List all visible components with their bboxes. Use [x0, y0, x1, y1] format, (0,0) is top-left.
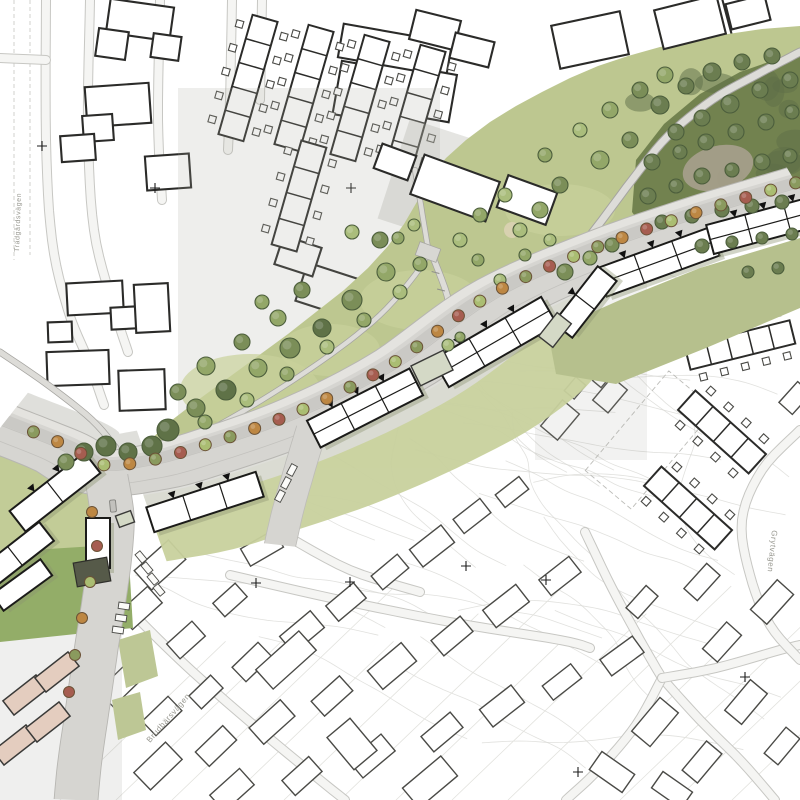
tree-icon [695, 239, 709, 253]
street-tree-icon [92, 541, 103, 552]
street-tree-icon [452, 310, 464, 322]
tree-icon [678, 78, 694, 94]
street-tree-icon [790, 177, 800, 189]
tree-icon [270, 310, 286, 326]
street-tree-icon [321, 393, 333, 405]
tree-icon [725, 163, 739, 177]
tree-icon [532, 202, 548, 218]
tree-icon [455, 332, 465, 342]
tree-icon [392, 232, 404, 244]
tree-icon [644, 154, 660, 170]
tree-icon [234, 334, 250, 350]
street-tree-icon [70, 650, 81, 661]
street-tree-icon [568, 250, 580, 262]
tree-icon [772, 262, 784, 274]
tree-icon [703, 63, 721, 81]
street-tree-icon [297, 403, 309, 415]
street-tree-icon [389, 356, 401, 368]
tree-icon [357, 313, 371, 327]
street-tree-icon [432, 325, 444, 337]
street-tree-icon [411, 341, 423, 353]
tree-icon [758, 114, 774, 130]
tree-icon [782, 72, 798, 88]
street-tree-icon [85, 577, 96, 588]
street-tree-icon [665, 215, 677, 227]
street-tree-icon [740, 191, 752, 203]
street-tree-icon [64, 687, 75, 698]
tree-icon [413, 257, 427, 271]
street-tree-icon [175, 447, 187, 459]
tree-icon [255, 295, 269, 309]
street-tree-icon [224, 431, 236, 443]
tree-icon [513, 223, 527, 237]
tree-icon [197, 357, 215, 375]
street-tree-icon [344, 381, 356, 393]
street-tree-icon [520, 271, 532, 283]
tree-icon [783, 149, 797, 163]
tree-icon [694, 168, 710, 184]
tree-icon [345, 225, 359, 239]
street-tree-icon [249, 422, 261, 434]
street-tree-icon [75, 447, 87, 459]
tree-icon [673, 145, 687, 159]
tree-icon [249, 359, 267, 377]
tree-icon [538, 148, 552, 162]
street-tree-icon [715, 199, 727, 211]
tree-icon [668, 124, 684, 140]
tree-icon [320, 340, 334, 354]
street-tree-icon [273, 413, 285, 425]
tree-icon [602, 102, 618, 118]
tree-icon [552, 177, 568, 193]
tree-icon [294, 282, 310, 298]
tree-icon [573, 123, 587, 137]
tree-icon [721, 95, 739, 113]
tree-icon [170, 384, 186, 400]
tree-icon [591, 151, 609, 169]
street-tree-icon [592, 241, 604, 253]
tree-icon [393, 285, 407, 299]
tree-icon [756, 232, 768, 244]
tree-icon [473, 208, 487, 222]
tree-icon [187, 399, 205, 417]
street-tree-icon [149, 453, 161, 465]
tree-icon [669, 179, 683, 193]
tree-icon [632, 82, 648, 98]
tree-icon [657, 67, 673, 83]
street-tree-icon [474, 295, 486, 307]
tree-icon [742, 266, 754, 278]
street-tree-icon [98, 459, 110, 471]
tree-icon [698, 134, 714, 150]
street-tree-icon [367, 369, 379, 381]
tree-icon [694, 110, 710, 126]
tree-icon [519, 249, 531, 261]
tree-icon [557, 264, 573, 280]
street-tree-icon [52, 436, 64, 448]
tree-icon [198, 415, 212, 429]
tree-icon [442, 339, 454, 351]
tree-icon [752, 82, 768, 98]
tree-icon [728, 124, 744, 140]
street-tree-icon [616, 232, 628, 244]
tree-icon [313, 319, 331, 337]
street-tree-icon [641, 223, 653, 235]
street-tree-icon [496, 282, 508, 294]
street-tree-icon [199, 439, 211, 451]
tree-icon [640, 188, 656, 204]
street-tree-icon [27, 426, 39, 438]
tree-icon [280, 338, 300, 358]
tree-icon [754, 154, 770, 170]
street-tree-icon [87, 507, 98, 518]
site-plan-svg: BrudbärsvägenGrytvägenTrädgårdsvägen [0, 0, 800, 800]
tree-icon [157, 419, 179, 441]
street-tree-icon [765, 184, 777, 196]
tree-icon [408, 219, 420, 231]
street-tree-icon [124, 458, 136, 470]
street-tree-icon [690, 207, 702, 219]
tree-icon [96, 436, 116, 456]
tree-icon [786, 228, 798, 240]
tree-icon [775, 195, 789, 209]
tree-icon [734, 54, 750, 70]
tree-icon [280, 367, 294, 381]
tree-icon [498, 188, 512, 202]
tree-icon [583, 251, 597, 265]
tree-icon [372, 232, 388, 248]
tree-icon [453, 233, 467, 247]
tree-icon [142, 436, 162, 456]
tree-icon [764, 48, 780, 64]
tree-icon [342, 290, 362, 310]
tree-icon [58, 454, 74, 470]
site-plan-map: BrudbärsvägenGrytvägenTrädgårdsvägen [0, 0, 800, 800]
tree-icon [726, 236, 738, 248]
tree-icon [472, 254, 484, 266]
tree-icon [240, 393, 254, 407]
tree-icon [377, 263, 395, 281]
tree-icon [651, 96, 669, 114]
street-tree-icon [77, 613, 88, 624]
tree-icon [785, 105, 799, 119]
tree-icon [544, 234, 556, 246]
tree-icon [216, 380, 236, 400]
street-tree-icon [544, 260, 556, 272]
tree-icon [622, 132, 638, 148]
